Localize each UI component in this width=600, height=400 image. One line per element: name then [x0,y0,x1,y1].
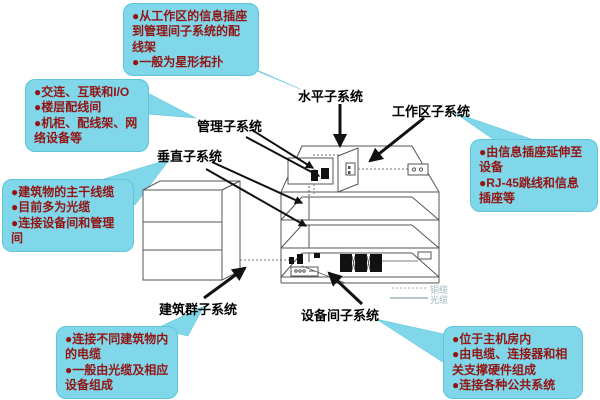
arrow-management-2 [246,137,319,176]
label-horizontal-subsystem: 水平子系统 [298,86,363,105]
structured-cabling-diagram: ●从工作区的信息插座到管理间子系统的配线架 ●一般为星形拓扑 ●交连、互联和I/… [0,0,600,400]
label-equipment-subsystem: 设备间子系统 [301,305,379,324]
callout-line: ●交连、互联和I/O [34,85,140,100]
callout-workarea-note: ●由信息插座延伸至设备 ●RJ-45跳线和信息插座等 [470,139,598,212]
callout-line: ●RJ-45跳线和信息插座等 [479,176,589,207]
callout-line: ●一般由光缆及相应设备组成 [65,363,169,394]
callout-line: ●连接设备间和管理间 [11,216,125,247]
legend-fiber-label: 光缆 [430,293,448,306]
arrow-management-1 [252,130,313,168]
callout-line: ●目前多为光缆 [11,200,125,215]
callout-tail-management [146,92,196,118]
callout-campus-note: ●连接不同建筑物内的电缆 ●一般由光缆及相应设备组成 [56,326,178,399]
callout-horizontal-note: ●从工作区的信息插座到管理间子系统的配线架 ●一般为星形拓扑 [123,3,259,76]
callout-line: ●连接不同建筑物内的电缆 [65,332,169,363]
vertical-riser [305,186,313,262]
wall-socket [418,252,431,259]
equipment-room-detail [289,252,431,283]
callout-line: ●位于主机房内 [452,332,574,347]
rack-2 [355,254,367,272]
label-campus-subsystem: 建筑群子系统 [159,299,237,318]
callout-line: ●一般为星形拓扑 [132,55,250,70]
rack-3 [370,254,382,272]
callout-tail-equipment [376,319,444,363]
callout-line: ●由信息插座延伸至设备 [479,145,589,176]
small-building [143,181,240,280]
callout-management-note: ●交连、互联和I/O ●楼层配线间 ●机柜、配线架、网络设备等 [25,79,149,152]
callout-line: ●从工作区的信息插座到管理间子系统的配线架 [132,9,250,55]
rack-1 [340,254,352,272]
label-workarea-subsystem: 工作区子系统 [392,101,470,120]
callout-line: ●建筑物的主干线缆 [11,185,125,200]
callout-line: ●机柜、配线架、网络设备等 [34,116,140,147]
label-management-subsystem: 管理子系统 [197,116,262,135]
callout-line: ●由电缆、连接器和相关支撑硬件组成 [452,347,574,378]
info-outlet-box [408,164,428,175]
patch-panel-2 [321,168,329,179]
callout-line: ●楼层配线间 [34,100,140,115]
label-vertical-subsystem: 垂直子系统 [157,146,222,165]
legend-lines [390,288,428,298]
callout-equipment-note: ●位于主机房内 ●由电缆、连接器和相关支撑硬件组成 ●连接各种公共系统 [443,326,583,399]
callout-line: ●连接各种公共系统 [452,378,574,393]
arrow-equipment-subsystem [329,273,362,304]
callout-backbone-note: ●建筑物的主干线缆 ●目前多为光缆 ●连接设备间和管理间 [2,179,134,252]
arrow-workarea-subsystem [370,118,424,161]
